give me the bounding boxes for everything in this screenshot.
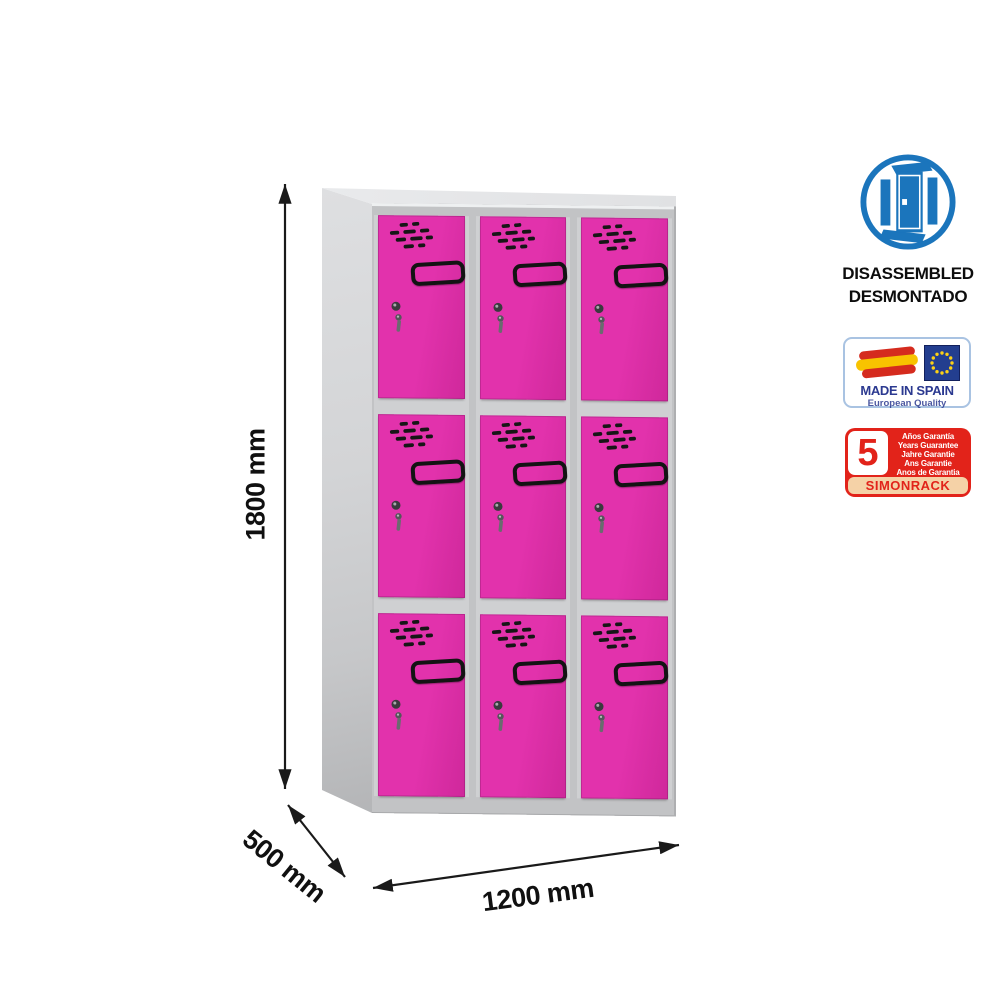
disassembled-label-es: DESMONTADO: [838, 286, 978, 309]
locker-door: [480, 614, 567, 798]
door-handle-plate: [512, 659, 567, 685]
keyhole-and-key-icon: [593, 702, 609, 736]
door-handle-plate: [512, 261, 567, 287]
vent-grille-icon: [487, 620, 539, 651]
locker-column: [577, 217, 672, 799]
keyhole-and-key-icon: [390, 500, 406, 534]
locker-door: [581, 217, 668, 401]
vent-grille-icon: [385, 420, 437, 451]
door-handle-plate: [614, 660, 669, 686]
made-in-spain-badge: MADE IN SPAIN European Quality: [843, 337, 971, 408]
keyhole-and-key-icon: [492, 501, 508, 535]
disassembled-wardrobe-icon: [859, 153, 957, 251]
locker-column: [374, 215, 469, 797]
vent-grille-icon: [487, 421, 539, 452]
disassembled-badge: DISASSEMBLED DESMONTADO: [838, 153, 978, 309]
guarantee-text-lines: Años Garantía Years Guarantee Jahre Gara…: [888, 431, 968, 475]
european-quality-subtitle: European Quality: [845, 398, 969, 409]
locker-door: [378, 414, 465, 598]
locker-column: [476, 216, 571, 798]
keyhole-and-key-icon: [492, 302, 508, 336]
height-dimension-label: 1800 mm: [241, 425, 272, 545]
locker-door: [378, 613, 465, 797]
spain-flag-icon: [854, 346, 920, 380]
guarantee-badge: 5 Años Garantía Years Guarantee Jahre Ga…: [845, 428, 971, 497]
keyhole-and-key-icon: [492, 700, 508, 734]
locker-door: [581, 615, 668, 799]
door-handle-plate: [410, 459, 465, 485]
locker-door: [480, 216, 567, 400]
locker-cabinet: [0, 0, 1000, 1000]
vent-grille-icon: [385, 619, 437, 650]
locker-door: [581, 416, 668, 600]
keyhole-and-key-icon: [593, 304, 609, 338]
vent-grille-icon: [385, 221, 437, 252]
keyhole-and-key-icon: [593, 503, 609, 537]
product-canvas: 1800 mm 500 mm 1200 mm DISASSEMBLED DESM…: [0, 0, 1000, 1000]
keyhole-and-key-icon: [390, 301, 406, 335]
keyhole-and-key-icon: [390, 699, 406, 733]
door-handle-plate: [410, 260, 465, 286]
vent-grille-icon: [588, 422, 640, 453]
door-handle-plate: [512, 460, 567, 486]
guarantee-years-number: 5: [848, 431, 888, 475]
vent-grille-icon: [487, 222, 539, 253]
eu-flag-icon: [924, 345, 960, 381]
disassembled-label-en: DISASSEMBLED: [838, 263, 978, 286]
locker-door: [480, 415, 567, 599]
locker-front-grid: [372, 203, 676, 816]
vent-grille-icon: [588, 223, 640, 254]
locker-side-panel: [322, 188, 372, 813]
door-handle-plate: [614, 262, 669, 288]
vent-grille-icon: [588, 621, 640, 652]
locker-door: [378, 215, 465, 399]
door-handle-plate: [410, 658, 465, 684]
guarantee-top-row: 5 Años Garantía Years Guarantee Jahre Ga…: [848, 431, 968, 475]
simonrack-brand: SIMONRACK: [848, 477, 968, 494]
made-in-spain-title: MADE IN SPAIN: [845, 383, 969, 398]
flags-row: [845, 344, 969, 381]
door-handle-plate: [614, 461, 669, 487]
